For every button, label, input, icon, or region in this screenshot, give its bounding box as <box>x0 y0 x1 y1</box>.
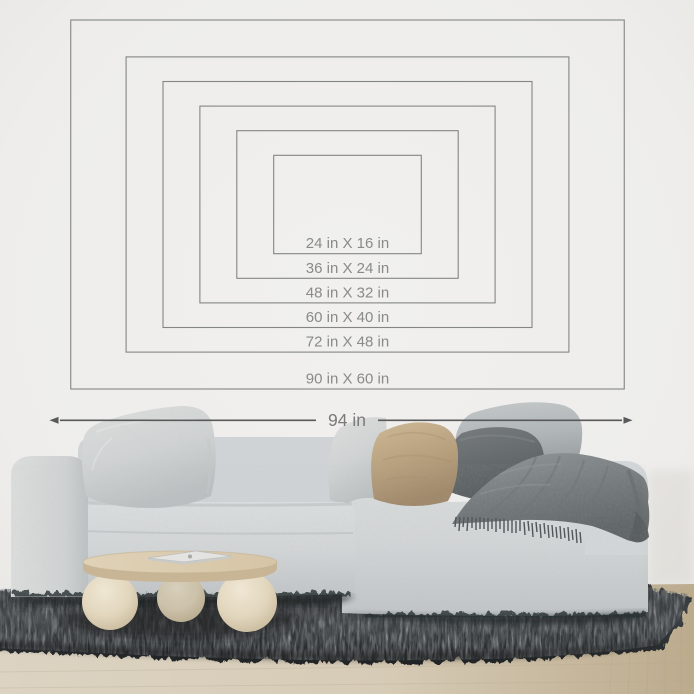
svg-text:94 in: 94 in <box>328 410 366 430</box>
svg-text:60 in X 40 in: 60 in X 40 in <box>306 309 389 326</box>
svg-text:36 in X 24 in: 36 in X 24 in <box>306 260 389 277</box>
svg-text:24 in X 16 in: 24 in X 16 in <box>306 235 389 252</box>
svg-text:48 in X 32 in: 48 in X 32 in <box>306 284 389 301</box>
svg-text:72 in X 48 in: 72 in X 48 in <box>306 334 389 351</box>
svg-text:90 in X 60 in: 90 in X 60 in <box>306 371 389 388</box>
